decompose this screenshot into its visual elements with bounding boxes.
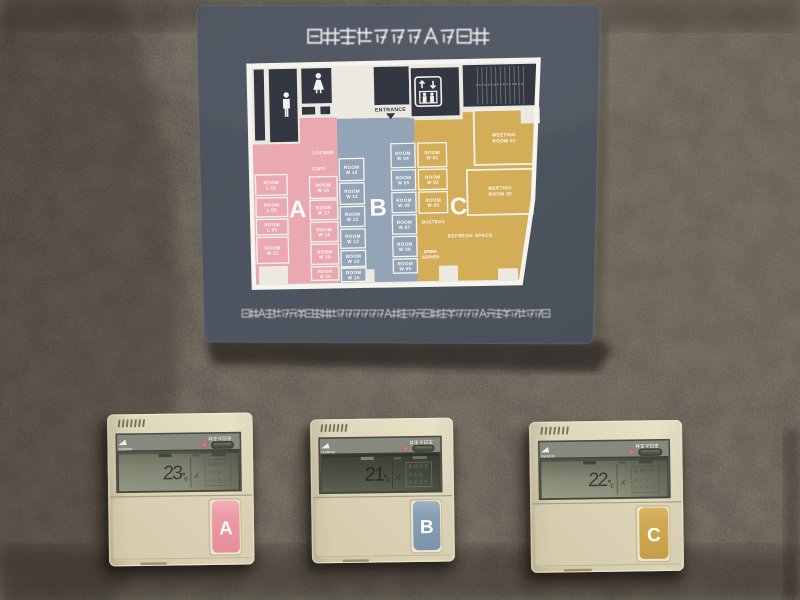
svg-text:c: c <box>386 477 390 484</box>
svg-text:B: B <box>369 194 387 221</box>
svg-text:W 03: W 03 <box>427 203 439 208</box>
svg-text:DUSTBOX: DUSTBOX <box>422 219 445 224</box>
svg-text:W 08: W 08 <box>399 247 411 252</box>
svg-text:W 19: W 19 <box>319 254 331 259</box>
svg-text:LOCKER: LOCKER <box>313 150 334 155</box>
svg-text:W 13: W 13 <box>347 239 359 244</box>
svg-text:W 05: W 05 <box>398 180 410 185</box>
svg-text:W 20: W 20 <box>320 274 331 279</box>
svg-text:23: 23 <box>162 462 183 484</box>
svg-text:W 15: W 15 <box>348 275 360 280</box>
svg-text:A: A <box>219 518 233 539</box>
svg-text:W 14: W 14 <box>348 259 360 264</box>
svg-text:MEETING: MEETING <box>492 132 516 137</box>
svg-text:L 02: L 02 <box>267 208 278 213</box>
svg-text:C: C <box>647 525 661 546</box>
svg-text:W 01: W 01 <box>426 155 438 160</box>
svg-text:DRINK: DRINK <box>424 249 439 254</box>
svg-text:W 09: W 09 <box>399 266 411 271</box>
svg-text:B: B <box>420 517 434 538</box>
svg-text:C: C <box>450 193 468 220</box>
svg-text:SERVER: SERVER <box>422 254 441 259</box>
svg-text:ROOM 01: ROOM 01 <box>492 138 516 143</box>
svg-text:W 11: W 11 <box>346 194 358 199</box>
svg-text:W 07: W 07 <box>399 225 411 230</box>
svg-text:ROOM 02: ROOM 02 <box>489 191 513 196</box>
svg-text:W 16: W 16 <box>317 188 329 193</box>
svg-text:MEETING: MEETING <box>488 185 512 190</box>
svg-text:c: c <box>184 475 188 482</box>
svg-text:L 01: L 01 <box>266 185 277 190</box>
svg-text:21: 21 <box>364 464 385 486</box>
svg-text:W 02: W 02 <box>427 180 439 185</box>
svg-text:W 06: W 06 <box>398 203 410 208</box>
svg-text:COPY: COPY <box>312 166 326 171</box>
svg-text:22: 22 <box>588 469 609 491</box>
svg-text:W 17: W 17 <box>318 210 330 215</box>
svg-text:L 03: L 03 <box>267 227 278 232</box>
svg-text:W 04: W 04 <box>397 156 409 161</box>
svg-text:W 10: W 10 <box>346 170 358 175</box>
svg-text:ENTRANCE: ENTRANCE <box>375 107 407 114</box>
svg-text:A: A <box>289 196 307 223</box>
svg-text:c: c <box>610 482 614 489</box>
svg-text:W 18: W 18 <box>318 232 330 237</box>
svg-text:W 21: W 21 <box>267 251 279 256</box>
svg-text:REFRESH SPACE: REFRESH SPACE <box>448 233 493 239</box>
svg-text:W 12: W 12 <box>347 217 359 222</box>
